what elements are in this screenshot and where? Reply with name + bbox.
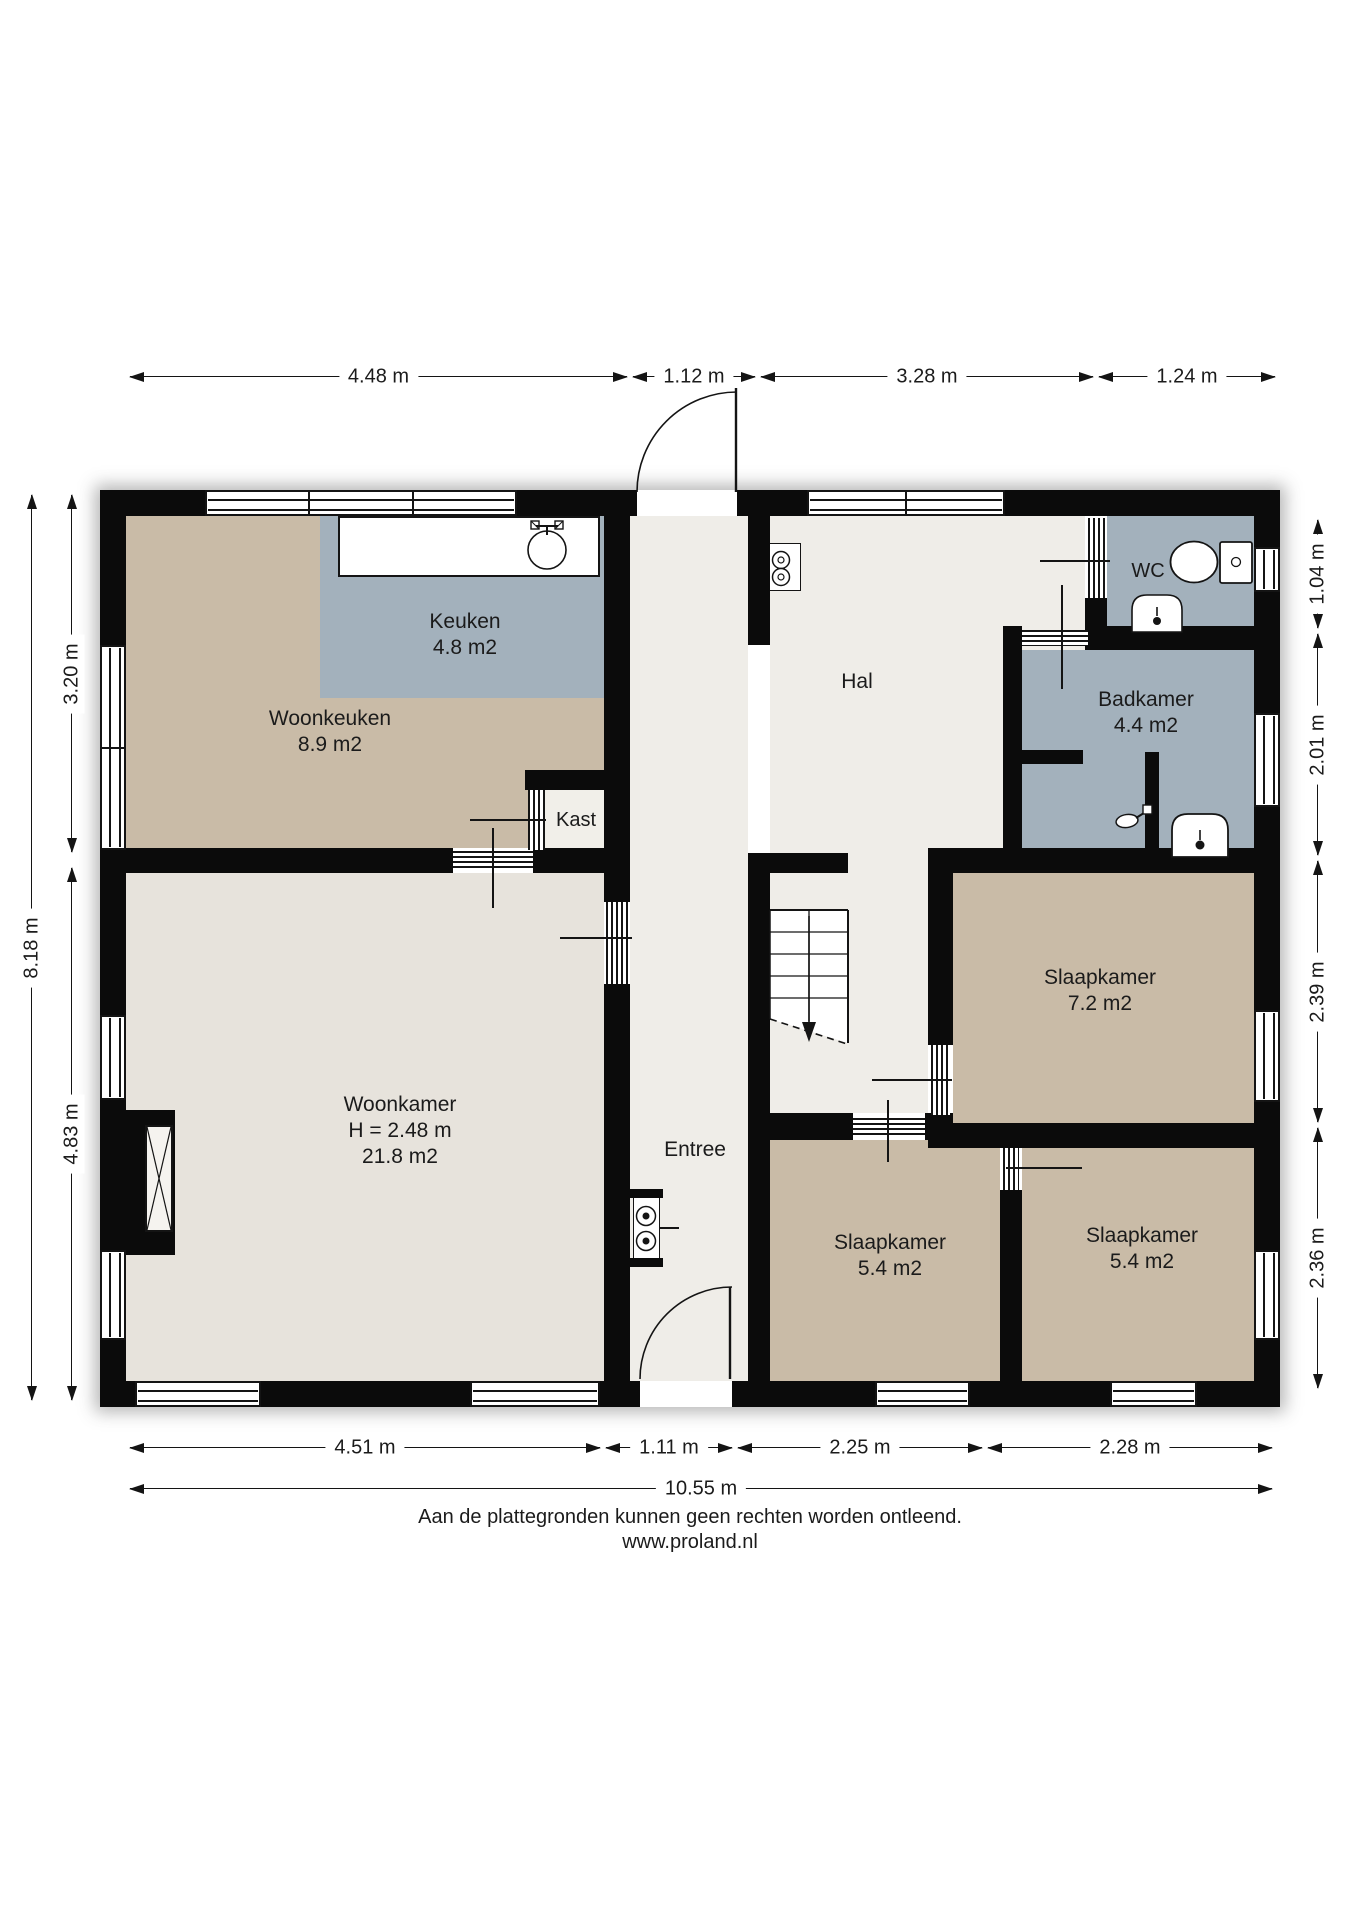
window-glazing — [109, 1018, 121, 1097]
door-swing-tick — [308, 490, 310, 516]
wall-segment — [737, 490, 807, 516]
wall-segment — [1254, 807, 1280, 1010]
room-label-keuken: Keuken4.8 m2 — [429, 609, 500, 661]
window-glazing — [1263, 716, 1275, 804]
door — [853, 1118, 925, 1135]
door-swing-tick — [1006, 1167, 1082, 1169]
chimney-flue — [145, 1125, 173, 1232]
window — [1254, 1250, 1280, 1340]
room-label-slaapkamer-right: Slaapkamer5.4 m2 — [1086, 1223, 1198, 1275]
window — [135, 1381, 261, 1407]
kitchen-counter — [338, 516, 600, 577]
room-label-woonkamer: Woonkamer H = 2.48 m 21.8 m2 — [344, 1092, 457, 1170]
wall-segment — [1085, 598, 1107, 650]
window-glazing — [878, 1390, 967, 1402]
wall-segment — [1254, 1102, 1280, 1250]
window-glazing — [1263, 550, 1275, 589]
wall-segment — [604, 984, 630, 1381]
room-label-hal: Hal — [841, 669, 873, 695]
floorplan-page: Woonkeuken8.9 m2 Keuken4.8 m2 Kast Hal E… — [0, 0, 1358, 1920]
wall-segment — [126, 848, 453, 873]
wall-segment — [100, 1100, 126, 1250]
window — [470, 1381, 600, 1407]
window-glazing — [109, 1253, 121, 1337]
window-glazing — [1263, 1013, 1275, 1099]
room-floor-hal — [848, 848, 928, 873]
door-swing-tick — [412, 490, 414, 516]
window-glazing — [138, 1390, 258, 1402]
wall-segment — [1254, 592, 1280, 713]
wall-segment — [928, 873, 953, 1045]
front-door-swing — [637, 388, 737, 492]
door — [1003, 1148, 1019, 1190]
meter-box-cap — [630, 1189, 663, 1198]
door-swing-tick — [1061, 585, 1063, 689]
wall-segment — [1107, 626, 1254, 650]
door-swing-tick — [1040, 560, 1110, 562]
meter-box — [633, 1197, 660, 1259]
room-label-entree: Entree — [664, 1137, 726, 1163]
door — [606, 902, 628, 984]
room-label-wc: WC — [1131, 558, 1164, 584]
wall-segment — [1145, 752, 1159, 853]
window — [875, 1381, 970, 1407]
wall-segment — [928, 1123, 1254, 1148]
wall-segment — [517, 490, 637, 516]
wall-segment — [1003, 626, 1022, 853]
window — [205, 490, 517, 516]
wall-segment — [525, 770, 604, 790]
wall-segment — [928, 848, 1254, 873]
room-label-badkamer: Badkamer4.4 m2 — [1098, 687, 1194, 739]
window-glazing — [473, 1390, 597, 1402]
wall-segment — [1000, 1190, 1022, 1381]
door-swing-tick — [100, 747, 126, 749]
wall-segment — [748, 853, 770, 1381]
door-swing-tick — [905, 490, 907, 516]
door-swing-tick — [560, 937, 632, 939]
room-floor-hal — [770, 653, 1010, 853]
wall-segment — [970, 1381, 1110, 1407]
wall-segment — [604, 516, 630, 873]
wall-segment — [100, 1381, 135, 1407]
wall-segment — [732, 1381, 875, 1407]
wall-segment — [100, 850, 126, 1015]
window — [1110, 1381, 1197, 1407]
door-swing-tick — [470, 819, 546, 821]
room-label-slaapkamer-7-2: Slaapkamer7.2 m2 — [1044, 965, 1156, 1017]
wall-segment — [1254, 1340, 1280, 1407]
wall-segment — [1018, 750, 1083, 764]
window-glazing — [1263, 1253, 1275, 1337]
window-glazing — [208, 499, 514, 511]
wall-segment — [600, 1381, 640, 1407]
footer-disclaimer: Aan de plattegronden kunnen geen rechten… — [418, 1506, 962, 1529]
room-floor-hal — [770, 873, 928, 1113]
wall-segment — [1005, 490, 1280, 516]
wall-segment — [770, 1113, 853, 1140]
window-glazing — [1113, 1390, 1194, 1402]
window — [100, 1015, 126, 1100]
footer-website: www.proland.nl — [622, 1531, 758, 1554]
room-floor-wc — [1107, 516, 1254, 626]
room-label-slaapkamer-mid: Slaapkamer5.4 m2 — [834, 1230, 946, 1282]
door — [1022, 630, 1088, 646]
door — [1088, 518, 1105, 598]
door-swing-tick — [887, 1100, 889, 1162]
window — [100, 1250, 126, 1340]
wall-segment — [1254, 490, 1280, 547]
wall-segment — [604, 873, 630, 902]
wall-segment — [533, 848, 604, 873]
door-swing-tick — [492, 828, 494, 908]
window — [1254, 547, 1280, 592]
wall-segment — [748, 516, 770, 645]
wall-segment — [770, 853, 848, 873]
window — [1254, 1010, 1280, 1102]
room-label-woonkeuken: Woonkeuken8.9 m2 — [269, 706, 391, 758]
door-swing-tick — [872, 1079, 952, 1081]
window — [1254, 713, 1280, 807]
meter-box-cap — [630, 1258, 663, 1267]
wall-segment — [100, 490, 126, 645]
door-swing-tick — [659, 1227, 679, 1229]
room-label-kast: Kast — [556, 807, 596, 833]
wall-segment — [261, 1381, 470, 1407]
